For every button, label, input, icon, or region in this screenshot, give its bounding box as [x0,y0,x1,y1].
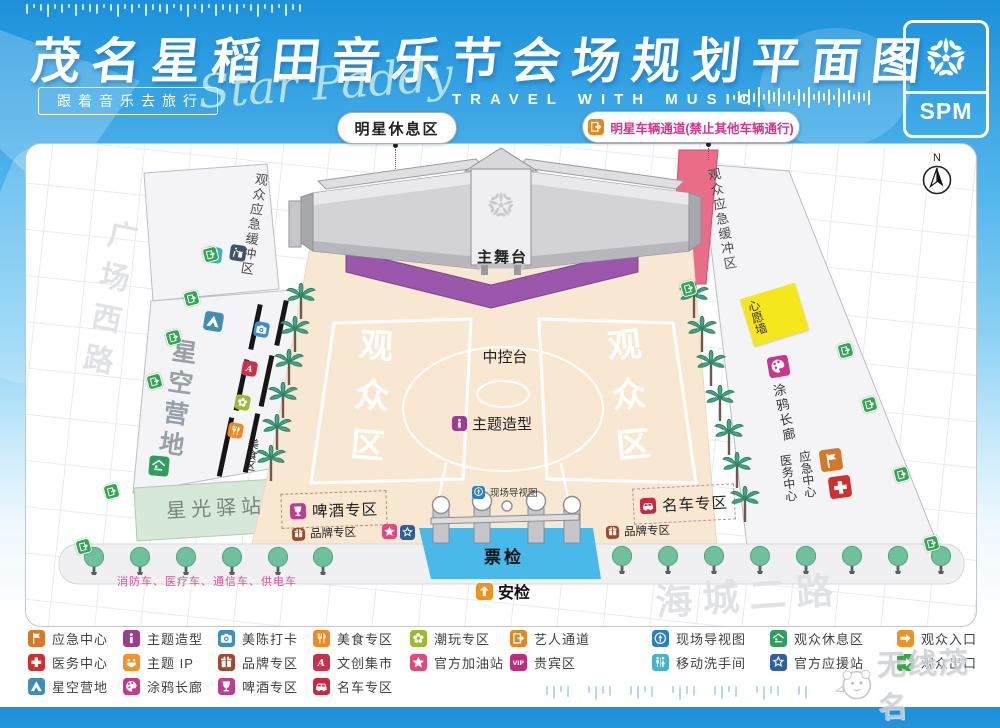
star-badge-icon [400,525,415,540]
exit-marker [924,536,939,554]
camera-marker [254,322,269,341]
camera-icon [218,630,235,647]
beer-zone-box: 啤酒专区 [280,490,387,529]
flower-icon [234,394,251,411]
gift-icon [292,527,305,540]
legend-item: 现场导视图 [652,630,746,647]
legend-item: 涂鸦长廊 [123,678,203,695]
car-icon [640,497,657,514]
legend-item-label: 啤酒专区 [242,677,298,696]
exit-door-icon [860,395,878,413]
top-waveform-ticks [26,4,301,17]
legend-item-label: 艺人通道 [534,629,590,648]
brand-zone-right-label: 品牌专区 [624,522,671,540]
svg-text:A: A [244,363,254,374]
exit-marker [681,281,696,299]
tent-icon [28,678,45,695]
beer-icon [218,678,235,695]
exit-marker [147,374,162,392]
legend-item-label: 星空营地 [52,677,108,696]
callout-star-veh-label: 明星车辆通道(禁止其他车辆通行) [610,118,793,137]
ticket-check-label: 票检 [484,543,524,568]
legend-item: 品牌专区 [218,654,298,671]
letter-a-icon: A [241,360,258,377]
exit-door-icon [922,534,940,552]
legend-item-label: 名车专区 [337,677,393,696]
legend-item: VIP贵宾区 [510,654,590,671]
legend-item: 名车专区 [313,678,393,695]
tree-icon [793,545,819,580]
exit-door-icon [892,465,910,483]
exit-marker [76,539,91,557]
audio-waveform-icon [733,84,870,110]
callout-star-lounge: 明星休息区 [337,112,457,144]
tagline-en: TRAVEL WITH MUSIC [452,91,759,108]
site-map-row: 现场导视图 [472,485,538,499]
legend-item-label: 移动洗手间 [676,653,746,672]
legend-item-label: 文创集市 [337,653,393,672]
tagline-cn: 跟着音乐去旅行 [38,87,218,115]
toilet-icon [652,654,669,671]
callout-star-veh: 明星车辆通道(禁止其他车辆通行) [582,111,800,143]
gift-icon [606,525,619,538]
legend: 应急中心医务中心星空营地主题造型主题 IP涂鸦长廊美陈打卡品牌专区啤酒专区美食专… [28,630,972,704]
legend-item: 星空营地 [28,678,108,695]
watermark-text: 无线茂名 [876,638,1000,726]
cross-icon [828,475,853,500]
brand-zone-left-row: 品牌专区 [292,524,357,542]
compass-icon: N [920,150,954,205]
tent-icon [203,311,225,333]
toy-marker [235,395,250,414]
logo-divider [906,91,986,94]
tree-icon [173,546,199,581]
exit-marker [838,343,853,361]
food-icon [313,630,330,647]
legend-item-label: 主题 IP [147,653,194,672]
rest-marker [149,456,169,480]
legend-item: 应急中心 [28,630,108,647]
legend-item-label: 主题造型 [147,629,203,648]
exit-marker [104,484,119,502]
callout-connector2 [708,148,709,160]
star-icon [410,654,427,671]
legend-column: 应急中心医务中心星空营地 [28,630,108,695]
legend-item-label: 现场导视图 [676,629,746,648]
callout-star-lounge-label: 明星休息区 [354,118,439,139]
beer-icon [290,502,307,519]
medical-marker [829,476,851,501]
watermark-mascot-icon [833,663,876,706]
car-zone-label: 名车专区 [661,491,728,516]
camera-icon [253,321,270,338]
exit-door-icon [145,372,163,390]
market-marker: A [242,361,257,380]
compass-n: N [933,152,941,164]
beer-zone-label: 啤酒专区 [312,497,379,521]
nav-icon [652,630,669,647]
legend-item-label: 贵宾区 [534,653,576,672]
tree-icon [265,546,291,581]
legend-column: 潮玩专区官方加油站 [410,630,504,671]
page-title: 茂名星稻田音乐节会场规划平面图 [28,22,935,93]
palm-tree-icon [256,445,286,488]
legend-item-label: 品牌专区 [242,653,298,672]
exit-door-icon [102,482,120,500]
svg-text:VIP: VIP [513,660,525,667]
arrow-up-icon [476,583,493,600]
legend-item-label: 美陈打卡 [242,629,298,648]
legend-item: 主题造型 [123,630,203,647]
spm-logo: SPM [903,20,989,138]
exit-door-icon [836,341,854,359]
legend-item-label: 官方加油站 [434,653,504,672]
info-icon [452,416,467,431]
exit-marker [203,247,218,265]
legend-column: 美陈打卡品牌专区啤酒专区 [218,630,298,695]
rest-icon [770,630,787,647]
exit-door-icon [679,279,697,297]
logo-text: SPM [920,98,973,125]
tent-marker [204,312,223,335]
tree-icon [310,546,336,581]
flag-icon [819,448,844,473]
brand-zone-right-row: 品牌专区 [606,522,671,540]
building-rice-emblem-icon [482,186,520,224]
rest-icon [148,455,170,477]
legend-item-label: 美食专区 [337,629,393,648]
site-map-label: 现场导视图 [490,485,538,499]
tree-icon [219,546,245,581]
rice-star-icon [917,29,975,87]
legend-column: 主题造型主题 IP涂鸦长廊 [123,630,203,695]
flag-icon [28,630,45,647]
palette-icon [123,678,140,695]
legend-item-label: 潮玩专区 [434,629,490,648]
legend-item-label: 医务中心 [52,653,108,672]
exit-door-icon [164,328,182,346]
legend-item: 官方加油站 [410,654,504,671]
exit-door-icon [201,245,219,263]
food-marker [228,423,243,442]
brand-zone-left-label: 品牌专区 [310,524,357,542]
tree-icon [655,545,681,580]
palm-tree-icon [730,486,760,529]
security-check-row: 安检 [476,579,530,603]
legend-item: 医务中心 [28,654,108,671]
litter-icon [229,244,247,262]
flower-icon [410,630,427,647]
callout-connector [395,149,396,169]
legend-item: 艺人通道 [510,630,590,647]
legend-item: 美陈打卡 [218,630,298,647]
legend-item: 主题 IP [123,654,203,671]
legend-item: 移动洗手间 [652,654,746,671]
letter-a-icon: A [313,654,330,671]
legend-item: 啤酒专区 [218,678,298,695]
exit-marker [184,291,199,309]
poster-root: { "header": { "title": "茂名星稻田音乐节会场规划平面图"… [0,0,1000,707]
tree-icon [609,545,635,580]
tree-icon [747,545,773,580]
theme-sculpture-row: 主题造型 [452,413,532,434]
legend-column: 现场导视图移动洗手间 [652,630,746,671]
cross-icon [28,654,45,671]
exit-marker [166,330,181,348]
tree-icon [127,546,153,581]
vip-icon: VIP [510,654,527,671]
litter-marker [230,245,246,265]
theme-sculpture-label: 主题造型 [472,413,532,434]
emergency-marker [820,449,842,474]
tree-icon [839,545,865,580]
info-icon [123,630,140,647]
legend-item: A文创集市 [313,654,393,671]
legend-column: 美食专区A文创集市名车专区 [313,630,393,695]
car-zone-box: 名车专区 [632,483,736,524]
car-icon [313,678,330,695]
legend-item-label: 涂鸦长廊 [147,677,203,696]
door-icon [510,630,527,647]
control-desk-label: 中控台 [473,346,537,367]
legend-item-label: 应急中心 [52,629,108,648]
tree-icon [701,545,727,580]
legend-item: 潮玩专区 [410,630,504,647]
legend-item: 美食专区 [313,630,393,647]
gift-icon [218,654,235,671]
tree-icon [885,545,911,580]
smile-icon [123,654,140,671]
palette-marker [768,356,789,381]
star-badge-icon [770,654,787,671]
palette-icon [766,354,790,378]
exit-door-icon [74,537,92,555]
nav-icon [472,486,485,499]
exit-marker [894,467,909,485]
exit-door-icon [182,289,200,307]
watermark: 无线茂名 [833,638,1000,728]
legend-column: 艺人通道VIP贵宾区 [510,630,590,671]
security-check-label: 安检 [498,579,530,603]
svg-text:A: A [317,658,325,669]
star-icon [382,524,397,539]
fuel_star-marker [382,524,397,543]
food-icon [227,422,244,439]
main-stage-label: 主舞台 [477,246,528,267]
exit-marker [862,397,877,415]
door-icon [588,119,604,135]
support_star-marker [400,525,415,544]
